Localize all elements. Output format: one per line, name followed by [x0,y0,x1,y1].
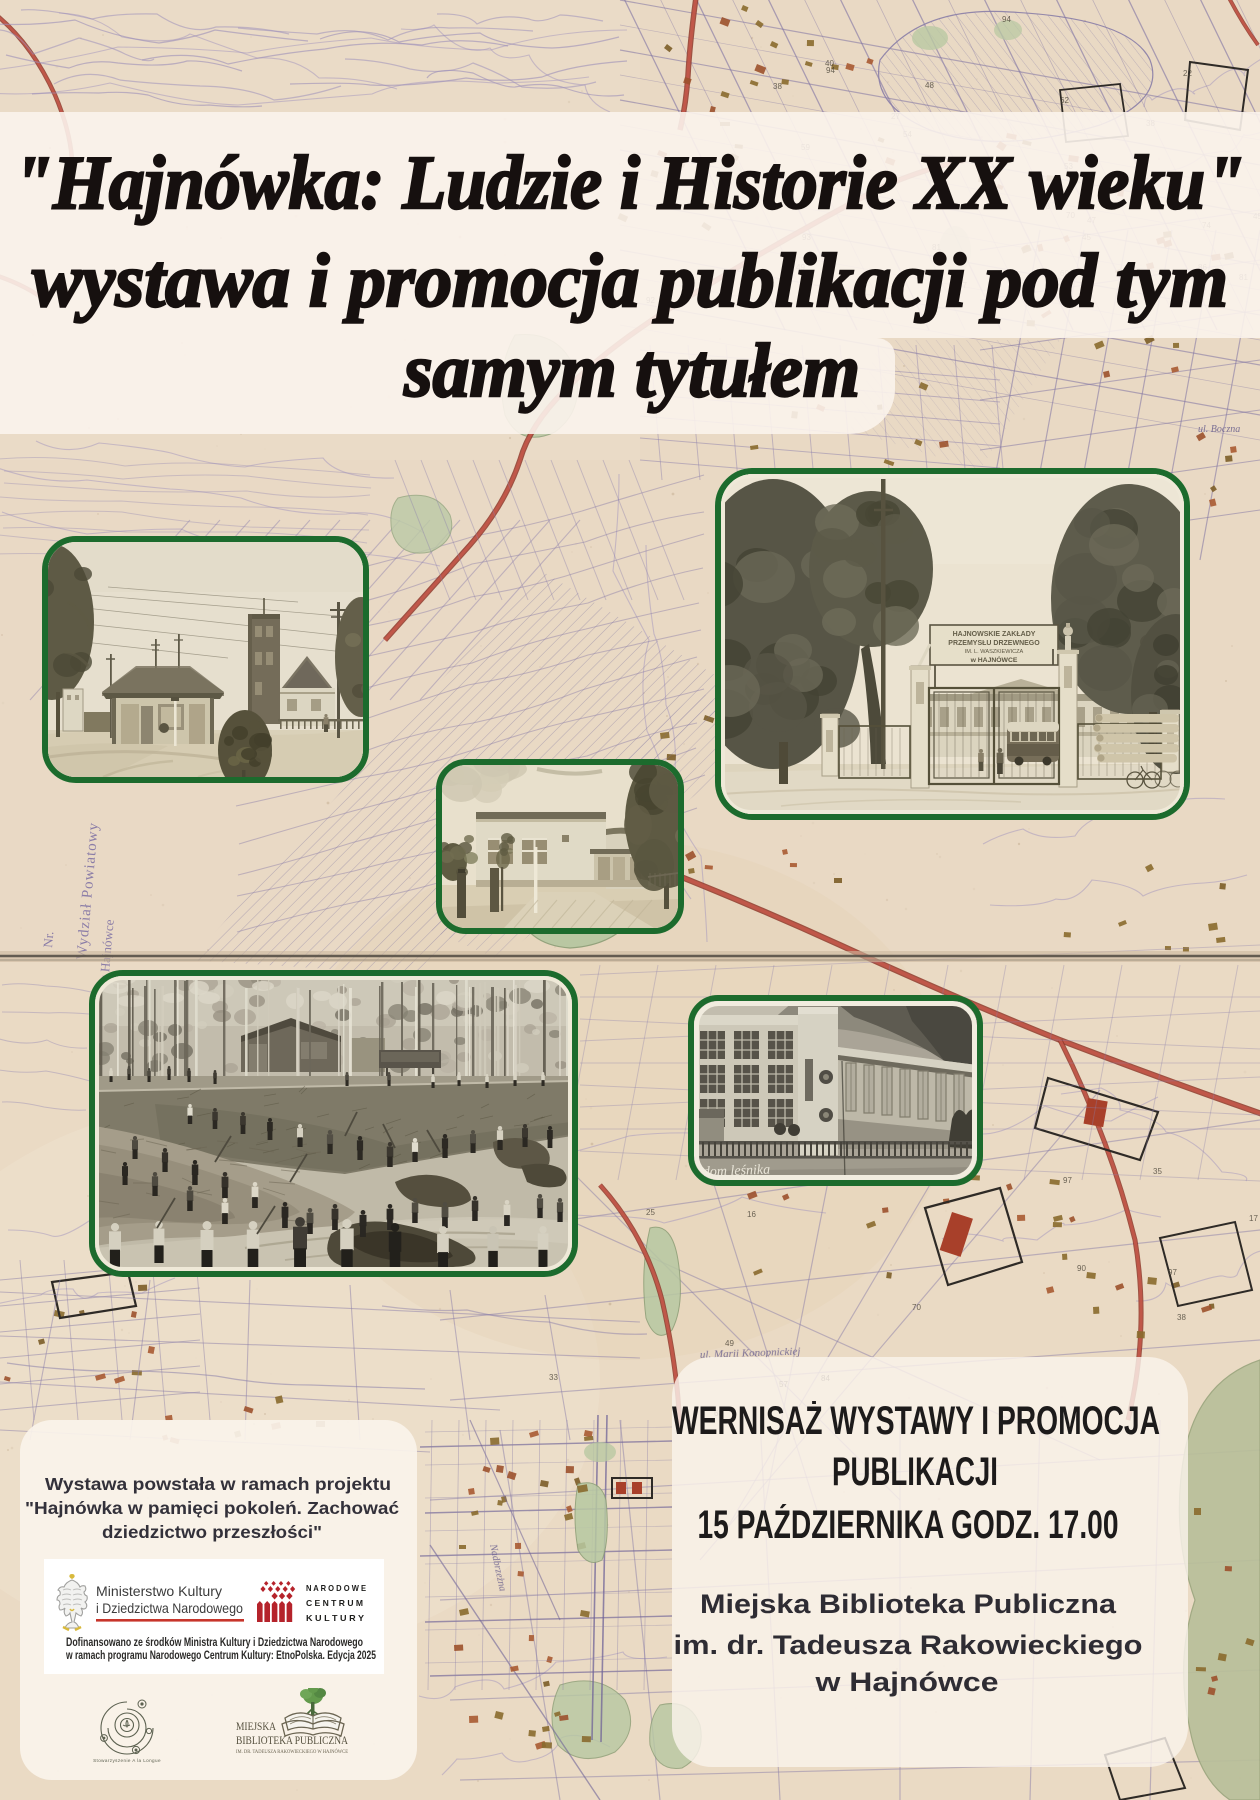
svg-text:K U L T U R Y: K U L T U R Y [306,1613,364,1623]
svg-text:wystawa i promocja publikacji: wystawa i promocja publikacji pod tym [32,239,1228,323]
svg-text:15 PAŹDZIERNIKA GODZ. 17.00: 15 PAŹDZIERNIKA GODZ. 17.00 [698,1504,1119,1547]
svg-text:94: 94 [1002,15,1011,24]
svg-text:dziedzictwo przeszłości": dziedzictwo przeszłości" [102,1522,322,1542]
svg-text:N A R O D O W E: N A R O D O W E [306,1583,366,1593]
svg-text:97: 97 [1168,1268,1177,1277]
svg-text:"Hajnówka w pamięci pokoleń. Z: "Hajnówka w pamięci pokoleń. Zachować [25,1498,399,1518]
svg-text:PUBLIKACJI: PUBLIKACJI [832,1452,998,1494]
svg-text:BIBLIOTEKA PUBLICZNA: BIBLIOTEKA PUBLICZNA [236,1735,349,1747]
svg-text:ul. Boczna: ul. Boczna [1198,424,1240,435]
svg-text:33: 33 [549,1373,558,1382]
svg-text:49: 49 [725,1339,734,1348]
svg-text:PRZEMYSŁU DRZEWNEGO: PRZEMYSŁU DRZEWNEGO [948,640,1040,647]
svg-text:w Hajnówce: w Hajnówce [814,1667,998,1697]
svg-text:97: 97 [1063,1176,1072,1185]
svg-text:Nr.: Nr. [40,931,56,948]
svg-text:25: 25 [646,1208,655,1217]
svg-text:IM. DR. TADEUSZA RAKOWIECKIEGO: IM. DR. TADEUSZA RAKOWIECKIEGO W HAJNÓWC… [236,1747,349,1755]
svg-text:IM. L. WASZKIEWICZA: IM. L. WASZKIEWICZA [965,649,1024,655]
svg-text:w ramach programu Narodowego C: w ramach programu Narodowego Centrum Kul… [65,1650,376,1662]
svg-text:38: 38 [1177,1313,1186,1322]
svg-text:48: 48 [925,81,934,90]
svg-text:94: 94 [826,66,835,75]
svg-text:samym tytułem: samym tytułem [403,329,860,413]
svg-text:Ministerstwo Kultury: Ministerstwo Kultury [96,1583,222,1599]
svg-text:62: 62 [1060,96,1069,105]
svg-text:90: 90 [1077,1264,1086,1273]
svg-text:35: 35 [1153,1167,1162,1176]
svg-text:70: 70 [912,1303,921,1312]
svg-text:WERNISAŻ WYSTAWY I PROMOCJA: WERNISAŻ WYSTAWY I PROMOCJA [672,1401,1160,1443]
svg-text:22: 22 [1183,69,1192,78]
svg-text:C E N T R U M: C E N T R U M [306,1598,363,1608]
svg-text:w HAJNÓWCE: w HAJNÓWCE [970,655,1018,664]
svg-text:17: 17 [1249,1214,1258,1223]
svg-text:im. dr. Tadeusza Rakowieckiego: im. dr. Tadeusza Rakowieckiego [674,1630,1143,1660]
svg-text:i Dziedzictwa Narodowego: i Dziedzictwa Narodowego [96,1600,243,1616]
svg-text:16: 16 [747,1210,756,1219]
svg-text:Miejska Biblioteka Publiczna: Miejska Biblioteka Publiczna [700,1589,1117,1619]
svg-text:MIEJSKA: MIEJSKA [236,1721,277,1733]
svg-text:HAJNOWSKIE ZAKŁADY: HAJNOWSKIE ZAKŁADY [953,631,1036,638]
svg-text:"Hajnówka: Ludzie i Historie X: "Hajnówka: Ludzie i Historie XX wieku" [13,141,1245,225]
svg-text:Dofinansowano ze środków Minis: Dofinansowano ze środków Ministra Kultur… [66,1637,363,1649]
svg-text:38: 38 [773,82,782,91]
svg-text:Wystawa powstała w ramach proj: Wystawa powstała w ramach projektu [45,1474,391,1494]
svg-text:Stowarzyszenie A la Longue: Stowarzyszenie A la Longue [93,1758,161,1763]
